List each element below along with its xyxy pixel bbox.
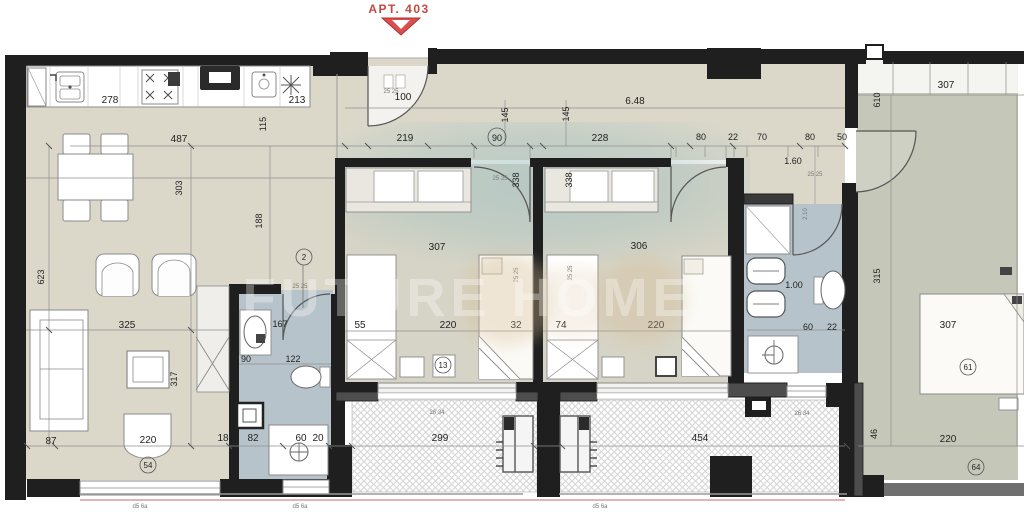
svg-text:90: 90 — [241, 354, 251, 364]
svg-text:317: 317 — [169, 371, 179, 386]
svg-text:d5 6a: d5 6a — [592, 504, 608, 510]
svg-text:APT. 403: APT. 403 — [368, 2, 429, 16]
svg-text:50: 50 — [837, 132, 847, 142]
svg-text:338: 338 — [511, 172, 521, 187]
svg-text:60: 60 — [295, 433, 307, 444]
svg-text:307: 307 — [429, 242, 446, 253]
svg-text:64: 64 — [972, 463, 981, 472]
svg-text:d5 6a: d5 6a — [132, 504, 148, 510]
svg-text:13: 13 — [439, 361, 448, 370]
svg-text:80: 80 — [805, 132, 815, 142]
svg-text:145: 145 — [500, 107, 510, 122]
svg-text:2: 2 — [302, 253, 307, 262]
svg-text:82: 82 — [247, 433, 259, 444]
svg-text:145: 145 — [561, 106, 571, 121]
svg-text:25 25: 25 25 — [383, 89, 399, 95]
svg-text:307: 307 — [940, 320, 957, 331]
svg-text:228: 228 — [592, 133, 609, 144]
svg-text:220: 220 — [940, 434, 957, 445]
svg-text:46: 46 — [869, 429, 879, 439]
svg-text:307: 307 — [938, 80, 955, 91]
svg-text:61: 61 — [964, 363, 973, 372]
svg-text:1.60: 1.60 — [784, 156, 802, 166]
svg-text:306: 306 — [631, 241, 648, 252]
svg-text:299: 299 — [432, 433, 449, 444]
svg-text:25 25: 25 25 — [492, 176, 508, 182]
svg-text:115: 115 — [258, 117, 268, 131]
svg-text:22: 22 — [827, 322, 837, 332]
svg-text:315: 315 — [872, 268, 882, 283]
svg-text:54: 54 — [144, 461, 153, 470]
svg-text:87: 87 — [45, 436, 57, 447]
svg-text:80: 80 — [696, 132, 706, 142]
svg-text:26 34: 26 34 — [429, 410, 445, 416]
svg-text:610: 610 — [872, 92, 882, 107]
svg-text:338: 338 — [564, 172, 574, 187]
svg-text:220: 220 — [140, 435, 157, 446]
svg-text:26 34: 26 34 — [794, 411, 810, 417]
svg-text:d5 6a: d5 6a — [292, 504, 308, 510]
svg-text:278: 278 — [102, 95, 119, 106]
svg-text:623: 623 — [36, 269, 46, 284]
svg-text:487: 487 — [171, 134, 188, 145]
svg-text:6.48: 6.48 — [625, 96, 645, 107]
svg-text:18: 18 — [217, 433, 229, 444]
svg-text:219: 219 — [397, 133, 414, 144]
svg-text:454: 454 — [692, 433, 709, 444]
svg-text:60: 60 — [803, 322, 813, 332]
svg-text:213: 213 — [289, 95, 306, 106]
svg-text:1.00: 1.00 — [785, 280, 803, 290]
svg-text:2.10: 2.10 — [803, 208, 809, 220]
svg-text:188: 188 — [254, 213, 264, 228]
svg-text:22: 22 — [728, 132, 738, 142]
svg-text:70: 70 — [757, 132, 767, 142]
svg-text:325: 325 — [119, 320, 136, 331]
svg-text:20: 20 — [312, 433, 324, 444]
svg-text:122: 122 — [285, 354, 300, 364]
svg-text:FUTURE HOME: FUTURE HOME — [243, 268, 694, 328]
svg-text:90: 90 — [492, 133, 502, 143]
svg-text:303: 303 — [174, 180, 184, 195]
svg-text:25 25: 25 25 — [807, 172, 823, 178]
